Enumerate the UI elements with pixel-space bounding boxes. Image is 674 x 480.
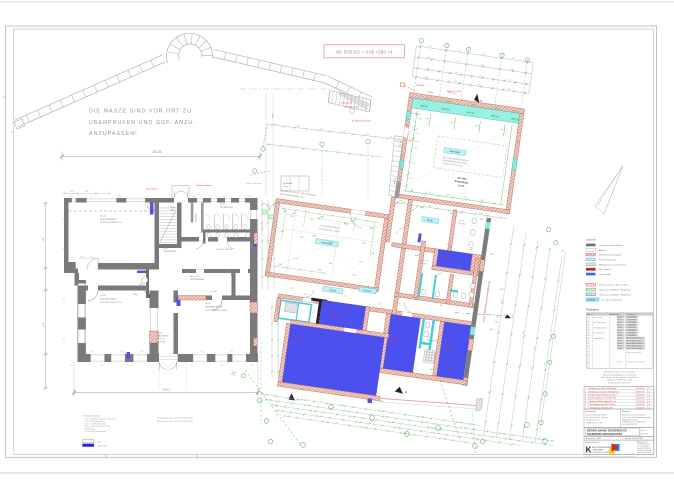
svg-text:1.26: 1.26 bbox=[90, 351, 93, 353]
svg-text:1.26: 1.26 bbox=[200, 351, 203, 353]
svg-text:UBERPRUFEN UND GGF. ANZU-: UBERPRUFEN UND GGF. ANZU- bbox=[89, 120, 196, 126]
svg-text:36.5: 36.5 bbox=[344, 223, 348, 225]
svg-text:(0.01): (0.01) bbox=[100, 216, 106, 218]
svg-text:Li. 25/BODEN: Li. 25/BODEN bbox=[626, 332, 635, 334]
svg-text:+0.35: +0.35 bbox=[170, 210, 175, 212]
svg-text:Mehrzweckraum: Mehrzweckraum bbox=[593, 333, 605, 335]
svg-text:Tel. 07622/6877-0: Tel. 07622/6877-0 bbox=[622, 424, 637, 426]
svg-text:1.01: 1.01 bbox=[326, 422, 329, 424]
svg-text:0.07: 0.07 bbox=[587, 333, 590, 335]
svg-text:1.01: 1.01 bbox=[353, 416, 356, 418]
svg-text:1.26: 1.26 bbox=[70, 365, 73, 367]
svg-text:Sp. Bestand aufnehmen: Sp. Bestand aufnehmen bbox=[352, 120, 371, 123]
svg-text:alle Hohen sind vor Ort zu pru: alle Hohen sind vor Ort zu prufen ! bbox=[604, 371, 636, 374]
svg-text:25 mm: 25 mm bbox=[617, 332, 622, 334]
svg-text:1.26: 1.26 bbox=[118, 196, 121, 198]
svg-text:KSV Mauerwerk tragend: KSV Mauerwerk tragend bbox=[599, 254, 622, 257]
svg-text:Sp. Bestand: Sp. Bestand bbox=[283, 182, 292, 185]
svg-text:0.04: 0.04 bbox=[587, 325, 590, 327]
svg-text:(0.03a): (0.03a) bbox=[156, 333, 163, 335]
svg-text:1.26: 1.26 bbox=[140, 351, 143, 353]
svg-text:1.01: 1.01 bbox=[269, 400, 272, 402]
svg-text:KLASSENRAUM: KLASSENRAUM bbox=[100, 298, 117, 301]
svg-text:0.02: 0.02 bbox=[587, 319, 590, 321]
svg-text:1 Stg.: 1 Stg. bbox=[133, 293, 138, 296]
svg-text:RH=3.98m: RH=3.98m bbox=[156, 342, 166, 344]
svg-text:Planverfasser:: Planverfasser: bbox=[586, 441, 600, 444]
svg-text:(0.03): (0.03) bbox=[100, 295, 106, 297]
svg-text:1.26: 1.26 bbox=[62, 299, 65, 301]
svg-text:- 25 cm Stb. Bodenplatte: - 25 cm Stb. Bodenplatte bbox=[84, 430, 107, 433]
svg-text:MW Mauerwerk nichttragend: MW Mauerwerk nichttragend bbox=[599, 263, 626, 266]
svg-text:1.01: 1.01 bbox=[460, 422, 463, 424]
svg-text:1.01: 1.01 bbox=[275, 405, 278, 407]
svg-text:0.10: 0.10 bbox=[587, 340, 590, 342]
svg-text:1.01: 1.01 bbox=[287, 416, 290, 418]
svg-text:36.5: 36.5 bbox=[480, 219, 484, 221]
svg-text:36.5: 36.5 bbox=[415, 299, 419, 301]
svg-text:1.01: 1.01 bbox=[386, 416, 389, 418]
svg-text:1.26: 1.26 bbox=[62, 219, 65, 221]
svg-text:0.01: 0.01 bbox=[587, 317, 590, 319]
svg-text:Anbau abbrechen: Anbau abbrechen bbox=[246, 182, 262, 185]
svg-text:1.01: 1.01 bbox=[503, 433, 506, 435]
svg-text:25 mm: 25 mm bbox=[617, 335, 622, 337]
svg-text:Dammung: Dammung bbox=[97, 446, 106, 448]
svg-text:1.88: 1.88 bbox=[80, 257, 83, 259]
svg-text:25 mm: 25 mm bbox=[617, 317, 622, 319]
svg-text:0.15: 0.15 bbox=[587, 354, 590, 356]
svg-text:Raumhohe abgehangt: Raumhohe abgehangt bbox=[602, 299, 623, 302]
svg-text:36.5: 36.5 bbox=[340, 395, 344, 397]
svg-text:1.26: 1.26 bbox=[70, 196, 73, 198]
svg-text:Schulstrasse 11: Schulstrasse 11 bbox=[586, 419, 601, 422]
svg-text:1.01: 1.01 bbox=[281, 411, 284, 413]
svg-text:25 mm: 25 mm bbox=[617, 327, 622, 329]
svg-text:Gez. si: Gez. si bbox=[641, 430, 647, 432]
svg-text:1.01: 1.01 bbox=[443, 439, 446, 441]
svg-text:36.5: 36.5 bbox=[460, 375, 464, 377]
svg-text:25 mm: 25 mm bbox=[617, 322, 622, 324]
svg-text:0.18: 0.18 bbox=[587, 361, 590, 363]
svg-text:KSV Vorsatzschale: KSV Vorsatzschale bbox=[599, 259, 618, 262]
svg-text:1.13: 1.13 bbox=[70, 191, 73, 193]
svg-text:25 mm: 25 mm bbox=[617, 361, 622, 363]
svg-text:1.26: 1.26 bbox=[90, 196, 93, 198]
svg-text:OK Rinne: OK Rinne bbox=[416, 85, 426, 87]
svg-text:1.01: 1.01 bbox=[421, 417, 424, 419]
svg-text:Legende :: Legende : bbox=[586, 238, 598, 242]
svg-text:0.03: 0.03 bbox=[587, 322, 590, 324]
svg-text:1.26: 1.26 bbox=[146, 196, 149, 198]
svg-text:1.01: 1.01 bbox=[308, 405, 311, 407]
svg-text:Li. 25/BODEN: Li. 25/BODEN bbox=[626, 322, 635, 324]
svg-text:Bezeichnung: Bezeichnung bbox=[610, 314, 619, 316]
svg-text:DIE MASZE SIND VOR ORT ZU: DIE MASZE SIND VOR ORT ZU bbox=[89, 109, 192, 115]
svg-text:0.19: 0.19 bbox=[587, 364, 590, 366]
svg-text:1.26: 1.26 bbox=[130, 365, 133, 367]
svg-text:entspricht NN +293.74 m: entspricht NN +293.74 m bbox=[608, 381, 631, 384]
svg-text:25 mm: 25 mm bbox=[617, 343, 622, 345]
svg-text:1.38: 1.38 bbox=[366, 134, 369, 136]
svg-text:Bauleitung und dem Statiker ab: Bauleitung und dem Statiker abzuklaren bbox=[601, 376, 639, 379]
svg-text:Li. 25/BODEN: Li. 25/BODEN bbox=[626, 327, 635, 329]
svg-text:WC MADCHEN: WC MADCHEN bbox=[220, 206, 233, 209]
svg-text:Massstab: 1:100: Massstab: 1:100 bbox=[586, 437, 602, 440]
svg-text:1.01: 1.01 bbox=[347, 411, 350, 413]
svg-text:25 mm: 25 mm bbox=[617, 319, 622, 321]
svg-text:1.26: 1.26 bbox=[250, 365, 253, 367]
svg-text:Datum: 26.02.2009: Datum: 26.02.2009 bbox=[625, 437, 644, 440]
svg-text:ANZUPASSEN!: ANZUPASSEN! bbox=[89, 131, 138, 137]
svg-text:36.5: 36.5 bbox=[490, 329, 494, 331]
svg-text:36.5: 36.5 bbox=[318, 218, 322, 220]
svg-text:1.26: 1.26 bbox=[62, 249, 65, 251]
svg-text:36.5: 36.5 bbox=[500, 289, 504, 291]
svg-text:vorhandene Bausubstanz: vorhandene Bausubstanz bbox=[599, 244, 623, 247]
svg-text:Bodenbelag: Bodenbelag bbox=[627, 314, 636, 316]
svg-text:0.05: 0.05 bbox=[587, 327, 590, 329]
svg-text:1.01: 1.01 bbox=[359, 422, 362, 424]
svg-text:1.38: 1.38 bbox=[412, 139, 415, 141]
svg-text:Li. 25/BODEN: Li. 25/BODEN bbox=[626, 325, 635, 327]
svg-text:36.5: 36.5 bbox=[292, 213, 296, 215]
svg-text:LEHRERZIMMER: LEHRERZIMMER bbox=[205, 307, 223, 309]
svg-text:Garderobe Flur: Garderobe Flur bbox=[593, 338, 604, 340]
svg-text:36.5: 36.5 bbox=[300, 237, 304, 239]
svg-text:12.05.09: 12.05.09 bbox=[641, 434, 648, 436]
svg-text:Fussbodenaufbau:: Fussbodenaufbau: bbox=[83, 416, 101, 418]
svg-text:GERATERAUM: GERATERAUM bbox=[190, 278, 204, 281]
svg-text:Abst. (0.05): Abst. (0.05) bbox=[190, 275, 201, 278]
svg-text:Rampe: Rampe bbox=[283, 186, 289, 188]
svg-text:1.26: 1.26 bbox=[222, 196, 225, 198]
svg-text:1.01: 1.01 bbox=[437, 433, 440, 435]
svg-text:36.5: 36.5 bbox=[440, 305, 444, 307]
svg-text:Bezugs OK FFB EG +-0.00: Bezugs OK FFB EG +-0.00 bbox=[607, 380, 633, 382]
svg-text:ca. 2.26: ca. 2.26 bbox=[210, 291, 216, 293]
svg-text:Unterzug - verdeckter Treppenl: Unterzug - verdeckter Treppenlauf bbox=[599, 293, 631, 296]
svg-text:1.01: 1.01 bbox=[509, 439, 512, 441]
svg-text:1.01: 1.01 bbox=[314, 411, 317, 413]
svg-text:Putz: Putz bbox=[97, 440, 101, 443]
svg-text:Flur Treppenhaus: Flur Treppenhaus bbox=[593, 322, 606, 324]
svg-text:1.26: 1.26 bbox=[62, 339, 65, 341]
svg-text:WINDFANG: WINDFANG bbox=[195, 212, 198, 222]
svg-text:1.38: 1.38 bbox=[274, 123, 277, 125]
svg-text:1.26: 1.26 bbox=[192, 196, 195, 198]
svg-text:Li. 25/BODEN: Li. 25/BODEN bbox=[626, 319, 635, 321]
svg-text:0.08: 0.08 bbox=[587, 335, 590, 337]
svg-text:1.01: 1.01 bbox=[343, 405, 346, 407]
svg-text:OK Mauer +2.38: OK Mauer +2.38 bbox=[344, 107, 357, 109]
svg-text:TREPPENHAUS: TREPPENHAUS bbox=[163, 250, 177, 253]
svg-text:1.38: 1.38 bbox=[320, 129, 323, 131]
svg-text:(0.04): (0.04) bbox=[205, 303, 211, 305]
svg-text:1.26: 1.26 bbox=[220, 365, 223, 367]
svg-text:1.26: 1.26 bbox=[120, 351, 123, 353]
svg-text:0.20: 0.20 bbox=[587, 367, 590, 369]
svg-text:1.01: 1.01 bbox=[392, 422, 395, 424]
svg-text:0.17: 0.17 bbox=[587, 359, 590, 361]
svg-text:0.16: 0.16 bbox=[587, 356, 590, 358]
svg-text:Attika OK +3.42: Attika OK +3.42 bbox=[447, 90, 462, 93]
svg-text:Raum: Raum bbox=[587, 314, 592, 316]
svg-text:36.5: 36.5 bbox=[450, 213, 454, 215]
svg-text:Holzzaun entfernen: Holzzaun entfernen bbox=[196, 184, 212, 187]
svg-text:36.5: 36.5 bbox=[430, 369, 434, 371]
svg-text:36.5: 36.5 bbox=[490, 254, 494, 256]
svg-text:Abweichende Angaben sind mit d: Abweichende Angaben sind mit der bbox=[603, 373, 636, 376]
svg-text:GARDEROBE: GARDEROBE bbox=[156, 335, 169, 338]
svg-text:1.26: 1.26 bbox=[230, 351, 233, 353]
svg-text:F=57.86m² RH=3.97m: F=57.86m² RH=3.97m bbox=[100, 301, 122, 304]
svg-text:1.38: 1.38 bbox=[389, 137, 392, 139]
svg-text:25 mm: 25 mm bbox=[617, 346, 622, 348]
svg-text:1.26: 1.26 bbox=[190, 365, 193, 367]
svg-text:GRUNDRISS ERDGESCHOSS: GRUNDRISS ERDGESCHOSS bbox=[587, 433, 622, 436]
svg-text:Sp. entfernen: Sp. entfernen bbox=[146, 188, 158, 191]
svg-text:0.11: 0.11 bbox=[587, 343, 590, 345]
svg-text:1.01: 1.01 bbox=[464, 428, 467, 430]
svg-text:25 mm: 25 mm bbox=[617, 348, 622, 350]
svg-text:1.01: 1.01 bbox=[425, 422, 428, 424]
svg-text:0.09: 0.09 bbox=[587, 338, 590, 340]
svg-text:Klassenraum: Klassenraum bbox=[593, 317, 603, 319]
svg-text:36.5: 36.5 bbox=[370, 228, 374, 230]
svg-text:Li. 25/BODEN: Li. 25/BODEN bbox=[626, 330, 635, 332]
svg-text:25 mm: 25 mm bbox=[617, 340, 622, 342]
svg-text:1.01: 1.01 bbox=[265, 394, 268, 396]
svg-text:Stb. Ortbeton: Stb. Ortbeton bbox=[599, 268, 612, 271]
svg-text:Abbruch: Abbruch bbox=[599, 249, 608, 252]
svg-text:1.26: 1.26 bbox=[248, 196, 251, 198]
svg-text:36.5: 36.5 bbox=[330, 242, 334, 244]
svg-text:2.26: 2.26 bbox=[85, 191, 88, 193]
svg-text:(0.07): (0.07) bbox=[220, 204, 225, 206]
svg-text:Li. 25/BODEN: Li. 25/BODEN bbox=[626, 335, 635, 337]
svg-text:1.01: 1.01 bbox=[320, 416, 323, 418]
svg-text:36.5: 36.5 bbox=[420, 207, 424, 209]
svg-text:Unterzug / Sturz - Ansicht obe: Unterzug / Sturz - Ansicht oben bbox=[599, 284, 629, 287]
svg-text:1.01: 1.01 bbox=[365, 427, 368, 429]
svg-text:Stb. Fertigteil: Stb. Fertigteil bbox=[599, 273, 612, 276]
svg-text:1.01: 1.01 bbox=[398, 427, 401, 429]
svg-text:0.06: 0.06 bbox=[587, 330, 590, 332]
svg-text:0.14: 0.14 bbox=[587, 351, 590, 353]
svg-text:19.02: 19.02 bbox=[162, 388, 170, 392]
svg-text:36.5: 36.5 bbox=[380, 401, 384, 403]
svg-text:2.57/3.08: 2.57/3.08 bbox=[587, 299, 595, 301]
svg-text:(0.02): (0.02) bbox=[163, 248, 168, 250]
svg-text:1.01: 1.01 bbox=[90, 257, 93, 259]
svg-text:Erweiterung und Umbau: Erweiterung und Umbau bbox=[586, 414, 608, 417]
svg-text:Planinhalt:: Planinhalt: bbox=[586, 410, 597, 413]
svg-text:www.krug-archit.de: www.krug-archit.de bbox=[637, 451, 651, 454]
svg-text:1.01: 1.01 bbox=[304, 400, 307, 402]
svg-text:Fensterbrustung h= 0.93 m (B: Fensterbrustung h= 0.93 m (B 05 - B 09) bbox=[157, 420, 193, 423]
svg-text:25 mm: 25 mm bbox=[617, 338, 622, 340]
svg-text:1.26: 1.26 bbox=[100, 365, 103, 367]
svg-text:1.38: 1.38 bbox=[343, 131, 346, 133]
svg-text:Bauherr:: Bauherr: bbox=[622, 410, 631, 413]
svg-text:(0.06) WC JUNGEN: (0.06) WC JUNGEN bbox=[216, 249, 233, 251]
svg-text:25.28: 25.28 bbox=[153, 150, 162, 154]
svg-text:F=9.70m²: F=9.70m² bbox=[156, 338, 165, 341]
svg-text:36.5: 36.5 bbox=[470, 249, 474, 251]
svg-text:F=41.16m² RH=3.98m: F=41.16m² RH=3.98m bbox=[205, 309, 227, 312]
svg-text:36.5: 36.5 bbox=[300, 389, 304, 391]
svg-text:Raumliste: Raumliste bbox=[587, 308, 600, 312]
svg-text:Sickerschacht: Sickerschacht bbox=[341, 102, 353, 105]
svg-text:F=57.86m² RH=3.97m: F=57.86m² RH=3.97m bbox=[100, 221, 122, 224]
svg-text:1.01: 1.01 bbox=[470, 433, 473, 435]
svg-text:1.01: 1.01 bbox=[476, 439, 479, 441]
svg-text:KLASSENRAUM: KLASSENRAUM bbox=[100, 218, 117, 221]
svg-text:1.76: 1.76 bbox=[262, 227, 264, 230]
svg-text:0.13: 0.13 bbox=[587, 348, 590, 350]
svg-text:Unterzug - Sichtbeton Treppenl: Unterzug - Sichtbeton Treppenlauf bbox=[599, 289, 631, 292]
svg-text:1.01: 1.01 bbox=[382, 411, 385, 413]
svg-text:25 mm: 25 mm bbox=[617, 330, 622, 332]
svg-text:Fensterbrustung h= 0.62 m (B: Fensterbrustung h= 0.62 m (B 01- B 04) bbox=[157, 417, 193, 420]
svg-text:OK FFB EG = 0.00 =293.74: OK FFB EG = 0.00 =293.74 bbox=[336, 50, 393, 55]
svg-text:Li. 25/BODEN: Li. 25/BODEN bbox=[626, 317, 635, 319]
svg-text:FREIE ARCHITEKTEN: FREIE ARCHITEKTEN bbox=[592, 451, 610, 454]
svg-text:25 mm: 25 mm bbox=[617, 325, 622, 327]
svg-text:0.12: 0.12 bbox=[587, 346, 590, 348]
svg-text:1.38: 1.38 bbox=[297, 126, 300, 128]
svg-text:1.01: 1.01 bbox=[431, 428, 434, 430]
svg-text:79688 Hausen i.W.: 79688 Hausen i.W. bbox=[586, 422, 603, 424]
